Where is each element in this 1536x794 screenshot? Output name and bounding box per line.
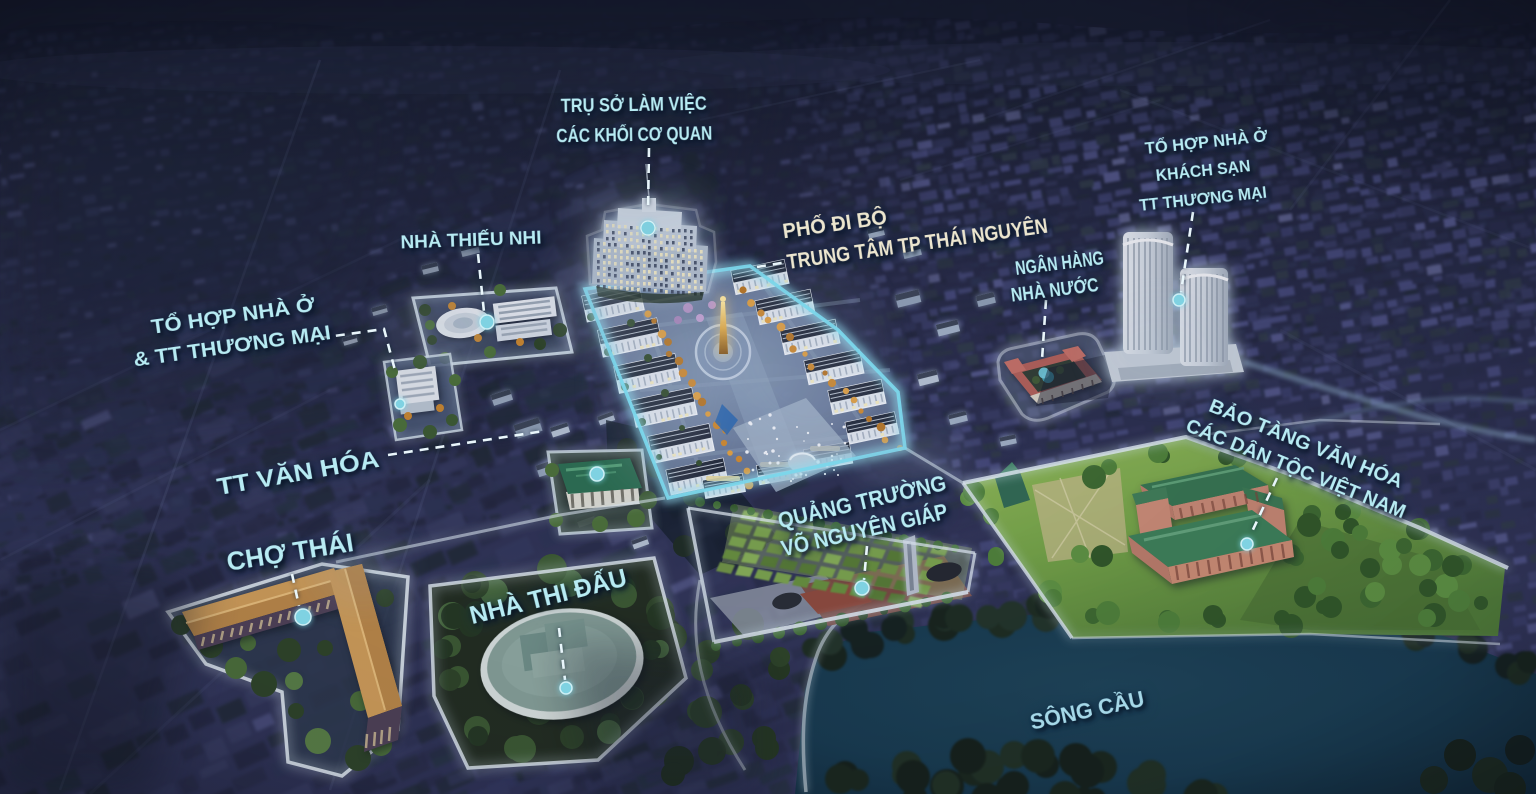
svg-text:TRỤ SỞ LÀM VIỆC: TRỤ SỞ LÀM VIỆC xyxy=(561,93,708,118)
svg-text:CÁC KHỐI CƠ QUAN: CÁC KHỐI CƠ QUAN xyxy=(556,123,712,148)
